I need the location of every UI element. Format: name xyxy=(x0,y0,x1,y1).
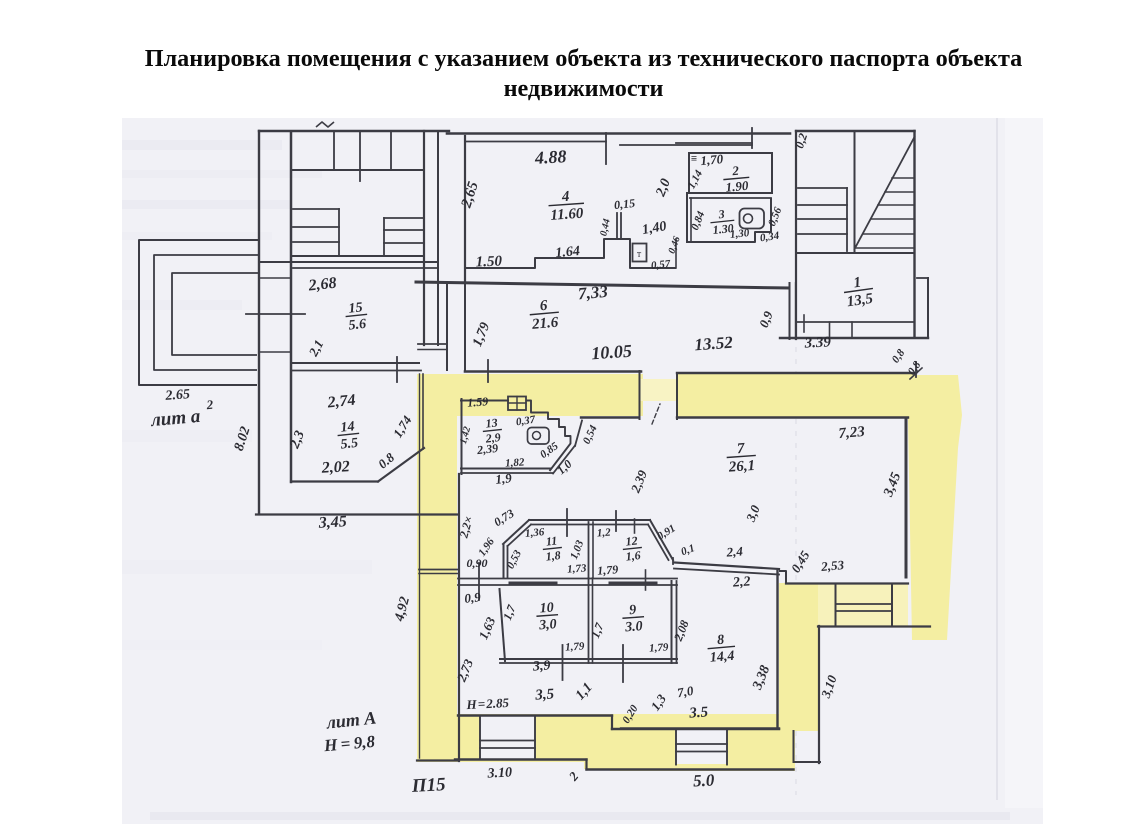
svg-text:2.65: 2.65 xyxy=(164,387,190,404)
svg-text:7,23: 7,23 xyxy=(838,424,866,442)
svg-text:1,8: 1,8 xyxy=(545,548,561,563)
svg-text:≡: ≡ xyxy=(691,153,697,165)
svg-text:1,30: 1,30 xyxy=(729,227,750,241)
svg-text:1,6: 1,6 xyxy=(625,548,641,563)
svg-text:21.6: 21.6 xyxy=(530,315,559,333)
svg-text:1.90: 1.90 xyxy=(725,178,749,195)
svg-text:7,33: 7,33 xyxy=(577,282,609,304)
svg-text:1,79: 1,79 xyxy=(597,562,619,577)
svg-text:8: 8 xyxy=(717,633,725,649)
svg-text:2,74: 2,74 xyxy=(326,392,357,412)
svg-text:11: 11 xyxy=(545,533,558,548)
svg-text:3,9: 3,9 xyxy=(532,658,552,674)
svg-text:3: 3 xyxy=(717,207,725,222)
svg-text:15: 15 xyxy=(348,300,363,316)
svg-text:2,53: 2,53 xyxy=(820,557,845,574)
svg-text:4.88: 4.88 xyxy=(533,146,567,168)
svg-text:0,57: 0,57 xyxy=(650,258,671,272)
svg-text:3.39: 3.39 xyxy=(803,334,832,351)
svg-text:14,4: 14,4 xyxy=(709,649,735,666)
svg-text:1.50: 1.50 xyxy=(475,254,502,271)
svg-text:3.5: 3.5 xyxy=(688,704,709,721)
svg-text:3,5: 3,5 xyxy=(534,686,555,703)
svg-text:13: 13 xyxy=(485,415,498,430)
svg-text:3,45: 3,45 xyxy=(317,513,347,531)
svg-text:5.0: 5.0 xyxy=(693,770,716,790)
svg-text:26,1: 26,1 xyxy=(727,458,755,476)
svg-text:2,02: 2,02 xyxy=(320,458,350,476)
svg-text:H = 2.85: H = 2.85 xyxy=(465,695,510,712)
svg-text:3.0: 3.0 xyxy=(624,619,644,635)
svg-text:1,36: 1,36 xyxy=(524,526,545,540)
svg-text:13.52: 13.52 xyxy=(694,333,734,355)
svg-text:5.6: 5.6 xyxy=(348,317,367,334)
svg-text:3.10: 3.10 xyxy=(486,765,512,781)
svg-text:0,90: 0,90 xyxy=(467,556,488,570)
svg-text:10: 10 xyxy=(539,601,554,617)
svg-text:1,79: 1,79 xyxy=(649,641,670,654)
svg-text:7,0: 7,0 xyxy=(676,683,695,701)
svg-text:2,2: 2,2 xyxy=(732,574,752,590)
svg-text:5.5: 5.5 xyxy=(340,436,359,453)
svg-text:2,4: 2,4 xyxy=(725,543,744,559)
svg-text:12: 12 xyxy=(625,533,638,548)
svg-text:1,70: 1,70 xyxy=(700,151,724,168)
svg-text:1.64: 1.64 xyxy=(555,244,581,261)
svg-text:т: т xyxy=(637,249,642,260)
svg-text:4: 4 xyxy=(560,189,570,206)
svg-text:2,39: 2,39 xyxy=(475,441,498,457)
svg-text:лит а: лит а xyxy=(149,406,201,431)
svg-text:П15: П15 xyxy=(410,774,446,797)
svg-text:10.05: 10.05 xyxy=(591,341,633,364)
svg-text:1.59: 1.59 xyxy=(467,394,489,409)
svg-text:3,0: 3,0 xyxy=(538,617,558,633)
svg-text:1,82: 1,82 xyxy=(505,456,526,469)
svg-text:11.60: 11.60 xyxy=(550,206,584,224)
svg-text:2,68: 2,68 xyxy=(307,275,338,295)
svg-text:0,15: 0,15 xyxy=(613,196,635,212)
svg-text:14: 14 xyxy=(340,419,355,435)
svg-text:1,73: 1,73 xyxy=(567,562,588,575)
svg-text:1,79: 1,79 xyxy=(565,640,586,653)
svg-text:1,2: 1,2 xyxy=(597,527,612,540)
svg-text:1,9: 1,9 xyxy=(495,470,513,487)
svg-text:0,9: 0,9 xyxy=(464,589,482,606)
svg-text:9: 9 xyxy=(629,603,637,618)
